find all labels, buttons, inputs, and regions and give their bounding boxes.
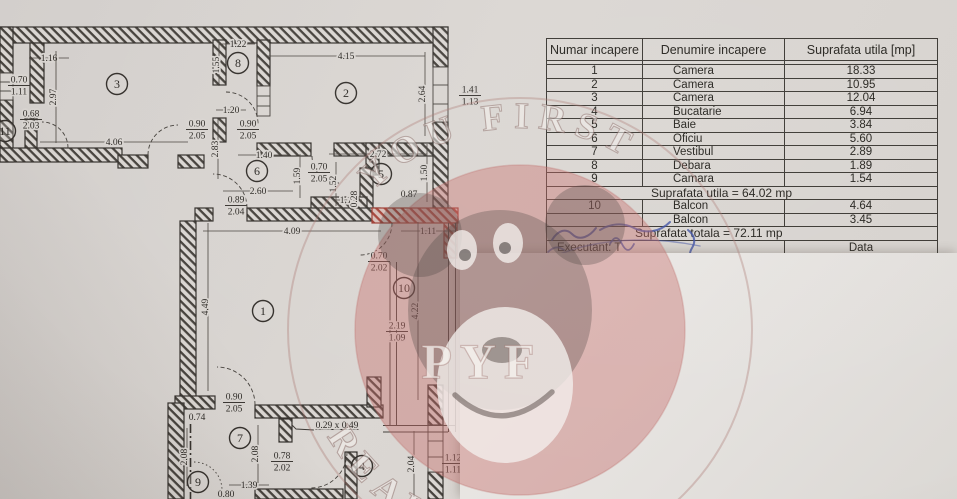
table-cell: 3.45 (785, 213, 938, 227)
dimension-fraction: 0.702.05 (308, 163, 330, 185)
svg-text:2.05: 2.05 (226, 405, 243, 415)
table-cell: 1.89 (785, 159, 938, 173)
dimension-label: 2.72 (370, 150, 387, 160)
room-number: 4 (352, 456, 373, 477)
table-row: 6Oficiu5.60 (547, 132, 938, 146)
table-cell: Bucatarie (643, 105, 785, 119)
svg-text:0.90: 0.90 (189, 120, 206, 130)
svg-text:0.78: 0.78 (274, 452, 291, 462)
svg-text:0.70: 0.70 (371, 252, 388, 262)
table-cell: Camera (643, 78, 785, 92)
svg-text:2.02: 2.02 (274, 464, 291, 474)
floorplan-scan-photo: 1.161.224.154.061.201.402.722.601.190.87… (0, 0, 957, 499)
svg-text:11: 11 (0, 124, 11, 138)
table-cell: Suprafata utila = 64.02 mp (547, 186, 938, 200)
header-room-area: Suprafata utila [mp] (785, 39, 938, 61)
dimension-label: 4.09 (284, 227, 301, 237)
table-cell: Vestibul (643, 146, 785, 160)
room-number: 1 (253, 301, 274, 322)
svg-text:0.90: 0.90 (226, 393, 243, 403)
walls (0, 27, 458, 499)
dimension-label: 0.28 (350, 190, 360, 207)
dimension-fraction: 1.411.13 (459, 86, 481, 108)
dimension-label: 4.15 (338, 52, 355, 62)
svg-text:2.05: 2.05 (240, 132, 257, 142)
svg-text:0.70: 0.70 (11, 76, 28, 86)
svg-text:9: 9 (195, 475, 201, 489)
table-row: 1Camera18.33 (547, 65, 938, 79)
svg-text:8: 8 (235, 56, 241, 70)
table-cell: 6 (547, 132, 643, 146)
svg-text:2.04: 2.04 (228, 208, 245, 218)
table-cell: 2 (547, 78, 643, 92)
room-number: 10 (394, 278, 415, 299)
table-cell: 3 (547, 92, 643, 106)
table-cell: 12.04 (785, 92, 938, 106)
table-row: 4Bucatarie6.94 (547, 105, 938, 119)
table-row: 7Vestibul2.89 (547, 146, 938, 160)
dimension-fraction: 0.702.02 (368, 252, 390, 274)
dimension-label: 1.39 (241, 481, 258, 491)
dimension-label: 2.04 (407, 455, 417, 472)
floorplan-drawing: 1.161.224.154.061.201.402.722.601.190.87… (0, 0, 520, 499)
svg-text:3: 3 (114, 77, 120, 91)
svg-text:2.05: 2.05 (311, 175, 328, 185)
table-cell: 4.64 (785, 200, 938, 214)
table-row: 10Balcon4.64 (547, 200, 938, 214)
table-row: 9Camara1.54 (547, 173, 938, 187)
header-room-name: Denumire incapere (643, 39, 785, 61)
table-cell: 5 (547, 119, 643, 133)
dimension-label: 2.83 (211, 140, 221, 157)
table-cell: 6.94 (785, 105, 938, 119)
table-cell: 2.89 (785, 146, 938, 160)
svg-text:1.41: 1.41 (462, 86, 479, 96)
svg-text:2.05: 2.05 (189, 132, 206, 142)
svg-text:4: 4 (359, 459, 365, 473)
table-cell: 8 (547, 159, 643, 173)
dimension-label: 2.97 (49, 88, 59, 105)
room-area-table: Numar incapere Denumire incapere Suprafa… (546, 38, 938, 257)
table-cell: 4 (547, 105, 643, 119)
dimension-label: 1.16 (41, 54, 58, 64)
table-cell: 7 (547, 146, 643, 160)
dimension-label: 0.74 (189, 413, 206, 423)
svg-text:0.68: 0.68 (23, 110, 40, 120)
table-cell: 1.54 (785, 173, 938, 187)
table-cell: Baie (643, 119, 785, 133)
table-row: 2Camera10.95 (547, 78, 938, 92)
svg-text:1.09: 1.09 (389, 334, 406, 344)
dimension-label: 2.64 (418, 85, 428, 102)
svg-text:5: 5 (378, 167, 384, 181)
dimension-label: 1.52 (329, 175, 339, 192)
svg-text:2.03: 2.03 (23, 122, 40, 132)
table-row: 3Camera12.04 (547, 92, 938, 106)
svg-text:2.02: 2.02 (371, 264, 388, 274)
dimension-label: 1.22 (230, 40, 247, 50)
dimension-labels: 1.161.224.154.061.201.402.722.601.190.87… (0, 40, 481, 499)
room-number: 9 (188, 472, 209, 493)
dimension-label: 1.11 (420, 227, 437, 237)
dimension-label: 4.22 (411, 302, 421, 319)
dimension-label: 1.50 (420, 164, 430, 181)
dimension-label: 1.20 (223, 106, 240, 116)
header-room-number: Numar incapere (547, 39, 643, 61)
room-number: 5 (371, 164, 392, 185)
dimension-label: 0.29 x 0.49 (316, 421, 359, 431)
dimension-label: 2.60 (250, 187, 267, 197)
pillar-leader-line (292, 425, 314, 430)
room-number: 3 (107, 74, 128, 95)
room-number: 6 (247, 161, 268, 182)
svg-text:7: 7 (237, 431, 243, 445)
table-cell: 10 (547, 200, 643, 214)
dimension-fraction: 0.782.02 (271, 452, 293, 474)
table-cell: 9 (547, 173, 643, 187)
table-cell: Camera (643, 65, 785, 79)
dimension-fraction: 0.902.05 (186, 120, 208, 142)
svg-text:0.90: 0.90 (240, 120, 257, 130)
svg-text:0.89: 0.89 (228, 196, 245, 206)
dimension-label: 4.06 (106, 138, 123, 148)
table-cell: 1 (547, 65, 643, 79)
table-header-row: Numar incapere Denumire incapere Suprafa… (547, 39, 938, 61)
dimension-label: 0.80 (218, 490, 235, 499)
svg-text:1: 1 (260, 304, 266, 318)
overlapping-blank-sheet (460, 253, 957, 499)
dimension-fraction: 0.892.04 (225, 196, 247, 218)
svg-text:2.19: 2.19 (389, 322, 406, 332)
table-cell: 5.60 (785, 132, 938, 146)
svg-text:1.11: 1.11 (445, 466, 462, 476)
dimension-label: 1.40 (256, 151, 273, 161)
dimension-fraction: 0.902.05 (223, 393, 245, 415)
svg-text:2: 2 (343, 86, 349, 100)
room-number: 8 (228, 53, 249, 74)
table-row: Suprafata totala = 72.11 mp (547, 227, 938, 241)
room-number: 11 (0, 121, 16, 142)
table-cell: 10.95 (785, 78, 938, 92)
dimension-label: 0.87 (401, 190, 418, 200)
dimension-fraction: 0.902.05 (237, 120, 259, 142)
svg-text:1.11: 1.11 (11, 88, 28, 98)
table-cell: Oficiu (643, 132, 785, 146)
table-cell: Camera (643, 92, 785, 106)
table-row: 5Baie3.84 (547, 119, 938, 133)
room-number: 2 (336, 83, 357, 104)
table-cell: Balcon (643, 200, 785, 214)
room-number: 7 (230, 428, 251, 449)
dimension-label: 2.08 (180, 448, 190, 465)
svg-text:10: 10 (398, 281, 410, 295)
table-cell: Camara (643, 173, 785, 187)
table-cell: Suprafata totala = 72.11 mp (547, 227, 938, 241)
table-cell: 18.33 (785, 65, 938, 79)
dimension-label: 1.55 (212, 56, 222, 73)
table-row: Suprafata utila = 64.02 mp (547, 186, 938, 200)
dimension-label: 2.08 (251, 445, 261, 462)
table-row: Balcon3.45 (547, 213, 938, 227)
svg-text:6: 6 (254, 164, 260, 178)
table-cell: Balcon (643, 213, 785, 227)
table-cell: 3.84 (785, 119, 938, 133)
table-row: 8Debara1.89 (547, 159, 938, 173)
svg-text:0.70: 0.70 (311, 163, 328, 173)
dimension-label: 1.59 (293, 167, 303, 184)
dimension-label: 4.49 (201, 298, 211, 315)
svg-text:1.13: 1.13 (462, 98, 479, 108)
table-cell: Debara (643, 159, 785, 173)
table-cell (547, 213, 643, 227)
